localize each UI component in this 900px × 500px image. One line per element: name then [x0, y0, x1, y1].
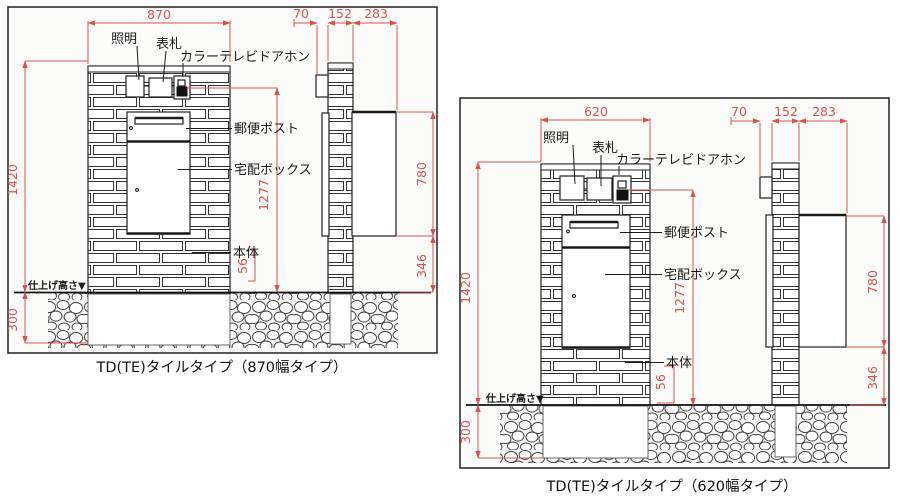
- doorphone-button: [618, 181, 626, 188]
- nameplate-box: [587, 178, 612, 200]
- finish-height-label: 仕上げ高さ▼: [485, 392, 544, 405]
- dim-label: 780: [865, 270, 880, 294]
- delivery-box-side-profile: [352, 112, 396, 236]
- technical-drawing: 870 1420 300 1277 56: [0, 0, 900, 500]
- side-brick-column: [772, 163, 799, 405]
- dim-label: 620: [584, 104, 608, 119]
- foundation-block: [543, 406, 648, 458]
- doorphone-screen: [177, 87, 187, 96]
- dim-label: 300: [5, 308, 20, 332]
- panel-620-caption: TD(TE)タイルタイプ（620幅タイプ）: [545, 478, 797, 495]
- side-column-cap: [328, 63, 353, 69]
- lighting-box: [560, 176, 584, 200]
- unit-front-panel-profile: [322, 113, 329, 236]
- delivery-box-label: 宅配ボックス: [664, 268, 742, 283]
- dim-label: 1420: [458, 272, 473, 304]
- dim-label: 56: [653, 374, 668, 390]
- doorphone-screen: [617, 190, 628, 200]
- finish-height-label: 仕上げ高さ▼: [27, 279, 86, 292]
- panel-620: 620 1420 300 1277 56: [458, 98, 889, 495]
- side-column-cap: [772, 163, 799, 169]
- nameplate-label: 表札: [156, 37, 182, 52]
- lighting-label: 照明: [543, 131, 569, 146]
- dim-label: 70: [731, 104, 747, 119]
- dim-label: 346: [414, 254, 429, 278]
- dim-label: 1277: [672, 282, 687, 314]
- mailbox-unit: [562, 215, 630, 348]
- side-post-foundation: [775, 406, 796, 457]
- panel-870-underground: [48, 293, 398, 348]
- panel-620-underground: [500, 405, 847, 463]
- delivery-box-side-profile: [799, 215, 846, 347]
- doorphone-label: カラーテレビドアホン: [616, 153, 746, 168]
- body-label: 本体: [233, 246, 259, 261]
- pillar-cap: [88, 66, 230, 72]
- doorphone-label: カラーテレビドアホン: [180, 50, 310, 65]
- doorphone-button: [178, 80, 185, 86]
- mailbox-unit: [127, 112, 190, 234]
- dim-label: 1277: [256, 179, 271, 211]
- dim-label: 346: [865, 366, 880, 390]
- body-label: 本体: [666, 356, 692, 371]
- panel-870: 870 1420 300 1277 56: [5, 6, 437, 376]
- dim-label: 283: [364, 6, 388, 21]
- lighting-box: [126, 76, 144, 97]
- mail-post-label: 郵便ポスト: [234, 122, 299, 137]
- dim-label: 1420: [5, 164, 20, 196]
- dim-label: 300: [458, 420, 473, 444]
- delivery-box-label: 宅配ボックス: [234, 163, 312, 178]
- side-brick-column: [328, 63, 353, 293]
- doorphone-side-profile: [316, 75, 328, 97]
- mail-post-label: 郵便ポスト: [664, 226, 729, 241]
- doorphone-side-profile: [760, 177, 772, 198]
- panel-620-front-view: [541, 164, 650, 405]
- nameplate-label: 表札: [592, 141, 618, 156]
- drawing-canvas: 870 1420 300 1277 56: [0, 0, 900, 500]
- foundation-block: [88, 294, 230, 345]
- dim-label: 70: [293, 6, 309, 21]
- nameplate-box: [149, 78, 172, 97]
- dim-label: 283: [812, 104, 836, 119]
- dim-label: 870: [147, 7, 171, 22]
- dim-label: 152: [328, 6, 352, 21]
- unit-front-panel-profile: [766, 215, 773, 347]
- dim-label: 152: [774, 104, 798, 119]
- lighting-label: 照明: [111, 32, 137, 47]
- side-post-foundation: [330, 294, 351, 344]
- panel-870-caption: TD(TE)タイルタイプ（870幅タイプ）: [95, 359, 347, 376]
- dim-label: 780: [414, 162, 429, 186]
- panel-870-front-view: [88, 66, 230, 293]
